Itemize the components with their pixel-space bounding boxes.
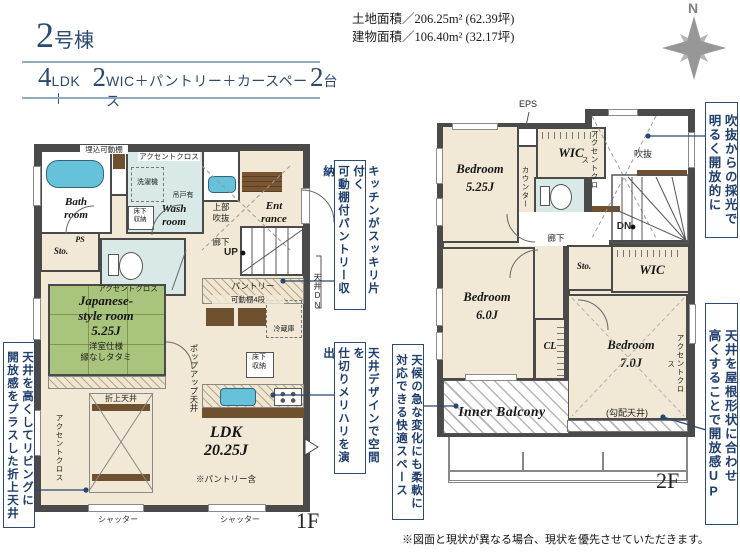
- compass-north-label: N: [688, 0, 698, 16]
- coffered-beam-top: [92, 404, 150, 411]
- balcony-post: [602, 452, 604, 470]
- plan-text-3: 台: [324, 71, 339, 91]
- window: [33, 298, 41, 340]
- plan-summary: 4LDK＋2WIC＋パントリー＋カースペース2台: [38, 62, 338, 94]
- label-bedroom1-size: 5.25J: [448, 180, 512, 194]
- stair-edge-2f-b: [592, 206, 620, 212]
- stairs-1f: [240, 226, 304, 276]
- label-shelf4: 可動棚4段: [212, 295, 284, 304]
- label-counter: カウンター: [519, 164, 530, 210]
- shoe-cabinet-icon: [242, 172, 282, 192]
- ceiling-drop-band: [48, 376, 166, 389]
- bathtub-icon: [46, 160, 104, 188]
- label-hang-cupboard: 吊戸有: [168, 192, 198, 201]
- label-ldk-accent: アクセントクロス: [53, 412, 64, 484]
- label-bedroom2: Bedroom: [450, 290, 524, 304]
- label-japanese-size: 5.25J: [56, 324, 156, 339]
- window: [436, 148, 443, 184]
- label-recessed-shelf: 埋込可動棚: [80, 145, 128, 154]
- window: [33, 166, 41, 206]
- kitchen-cabinet-band: [202, 408, 304, 418]
- balcony-railing-rail: [448, 470, 688, 472]
- label-bedroom1: Bedroom: [448, 162, 512, 176]
- label-entrance: Ent rance: [248, 200, 300, 225]
- annotation-sloped-ceiling: 天井を屋根形状に合わせ 高くすることで開放感UP: [705, 303, 738, 525]
- label-japanese-note: 洋室仕様 縁なしタタミ: [56, 341, 156, 362]
- floorplan-sheet: 2号棟 4LDK＋2WIC＋パントリー＋カースペース2台 土地面積／206.25…: [0, 0, 740, 555]
- label-wash: Wash room: [148, 203, 200, 228]
- stove-icon: [274, 388, 302, 406]
- label-coffered: 折上天井: [97, 394, 145, 404]
- label-bedroom3: Bedroom: [594, 338, 668, 352]
- label-japanese-room: Japanese- style room: [56, 294, 156, 324]
- annotation-ceiling-design: 天井デザインで空間を 仕切りメリハリを演出: [334, 342, 366, 474]
- annotation-coffered-ceiling: 天井を高くしてリビングに 開放感をプラスした折上天井: [3, 342, 35, 528]
- kitchen-sink-icon: [220, 388, 256, 406]
- inner-balcony-strip: [567, 420, 688, 432]
- window: [452, 123, 498, 130]
- window: [689, 304, 696, 344]
- label-ldk: LDK 20.25J: [182, 424, 270, 461]
- coffered-beam-bottom: [92, 474, 150, 481]
- window: [436, 288, 443, 326]
- label-wic-b: WIC: [632, 263, 672, 278]
- plan-num-3: 2: [310, 62, 324, 93]
- toilet-bowl-icon-2f: [550, 184, 572, 210]
- recessed-shelf-icon: [113, 153, 125, 169]
- balcony-sliding-door: [465, 374, 517, 381]
- label-accent-top: アクセントクロス: [138, 152, 200, 161]
- label-bath: Bath room: [50, 196, 102, 221]
- pantry-shelf-icon-left: [206, 308, 234, 326]
- balcony-railing: [448, 437, 688, 483]
- label-void-accent: アクセントクロス: [588, 128, 599, 192]
- label-hall-2f: 廊下: [544, 233, 568, 244]
- wic-b-hanger-ticks: [617, 250, 683, 257]
- wash-basin-icon: [208, 176, 236, 193]
- label-fridge: 冷蔵庫: [268, 326, 300, 335]
- label-shutter-a: シャッター: [94, 515, 142, 525]
- window: [436, 332, 443, 360]
- pantry-shelf-icon-right: [238, 308, 266, 326]
- window-shutter-right: [208, 504, 266, 512]
- label-sto-1f: Sto.: [46, 246, 76, 256]
- annotation-pantry: キッチンがスッキリ片付く 可動棚付パントリー収納: [334, 160, 366, 310]
- label-pantry: パントリー: [214, 281, 292, 292]
- label-popup-ceiling: ポップアップ天井: [186, 332, 199, 424]
- window: [688, 132, 695, 168]
- window: [436, 198, 443, 226]
- land-area: 土地面積／206.25m² (62.39坪): [352, 8, 514, 27]
- window-shutter-left: [88, 504, 144, 512]
- label-bedroom2-size: 6.0J: [450, 308, 524, 322]
- label-ps: PS: [70, 235, 90, 244]
- title-rule-bottom: [22, 97, 320, 99]
- toilet-tank-icon-1f: [108, 254, 119, 276]
- label-washer: 洗濯機: [131, 179, 164, 188]
- label-upper-void: 上部 吹抜: [206, 202, 236, 223]
- building-number: 2: [36, 15, 54, 55]
- plan-text-1: LDK＋: [52, 73, 93, 109]
- balcony-post: [522, 452, 524, 470]
- label-ldk-note: ※パントリー含: [182, 474, 270, 485]
- label-bed3-accent: アクセントクロス: [674, 332, 685, 396]
- building-area: 建物面積／106.40m² (32.17坪): [352, 26, 514, 45]
- building-title: 2号棟: [36, 14, 94, 56]
- window: [608, 109, 638, 116]
- annotation-void-light: 吹抜からの採光で 明るく開放的に: [705, 102, 738, 238]
- label-up: UP: [220, 247, 242, 260]
- label-inner-balcony: Inner Balcony: [450, 404, 554, 420]
- label-dn: DN: [613, 221, 635, 234]
- disclaimer: ※図面と現状が異なる場合、現状を優先させていただきます。: [402, 531, 738, 547]
- floor1-label: 1F: [296, 508, 319, 534]
- label-sto-2f: Sto.: [569, 261, 599, 271]
- compass-icon: [662, 16, 726, 80]
- label-void: 吹抜: [628, 149, 658, 160]
- label-shutter-b: シャッター: [216, 515, 264, 525]
- annotation-inner-balcony: 天候の急な変化にも柔軟に 対応できる快適スペース: [392, 344, 424, 520]
- label-eps: EPS: [513, 99, 543, 110]
- stair-edge-2f-a: [637, 170, 687, 176]
- label-cl: CL: [537, 341, 563, 353]
- toilet-tank-icon-2f: [540, 186, 550, 206]
- label-bedroom3-size: 7.0J: [594, 356, 668, 370]
- floor2-label: 2F: [656, 468, 679, 494]
- plan-num-1: 4: [38, 62, 52, 93]
- building-suffix: 号棟: [54, 30, 94, 52]
- label-sloped-ceiling: (勾配天井): [598, 408, 656, 419]
- label-jp-accent: アクセントクロス: [96, 284, 160, 293]
- label-underfloor-b: 床下 収納: [246, 354, 272, 372]
- plan-num-2: 2: [92, 62, 106, 93]
- plan-text-2: WIC＋パントリー＋カースペース: [106, 71, 310, 111]
- toilet-bowl-icon-1f: [119, 252, 143, 280]
- entrance-door-opening: [301, 188, 310, 224]
